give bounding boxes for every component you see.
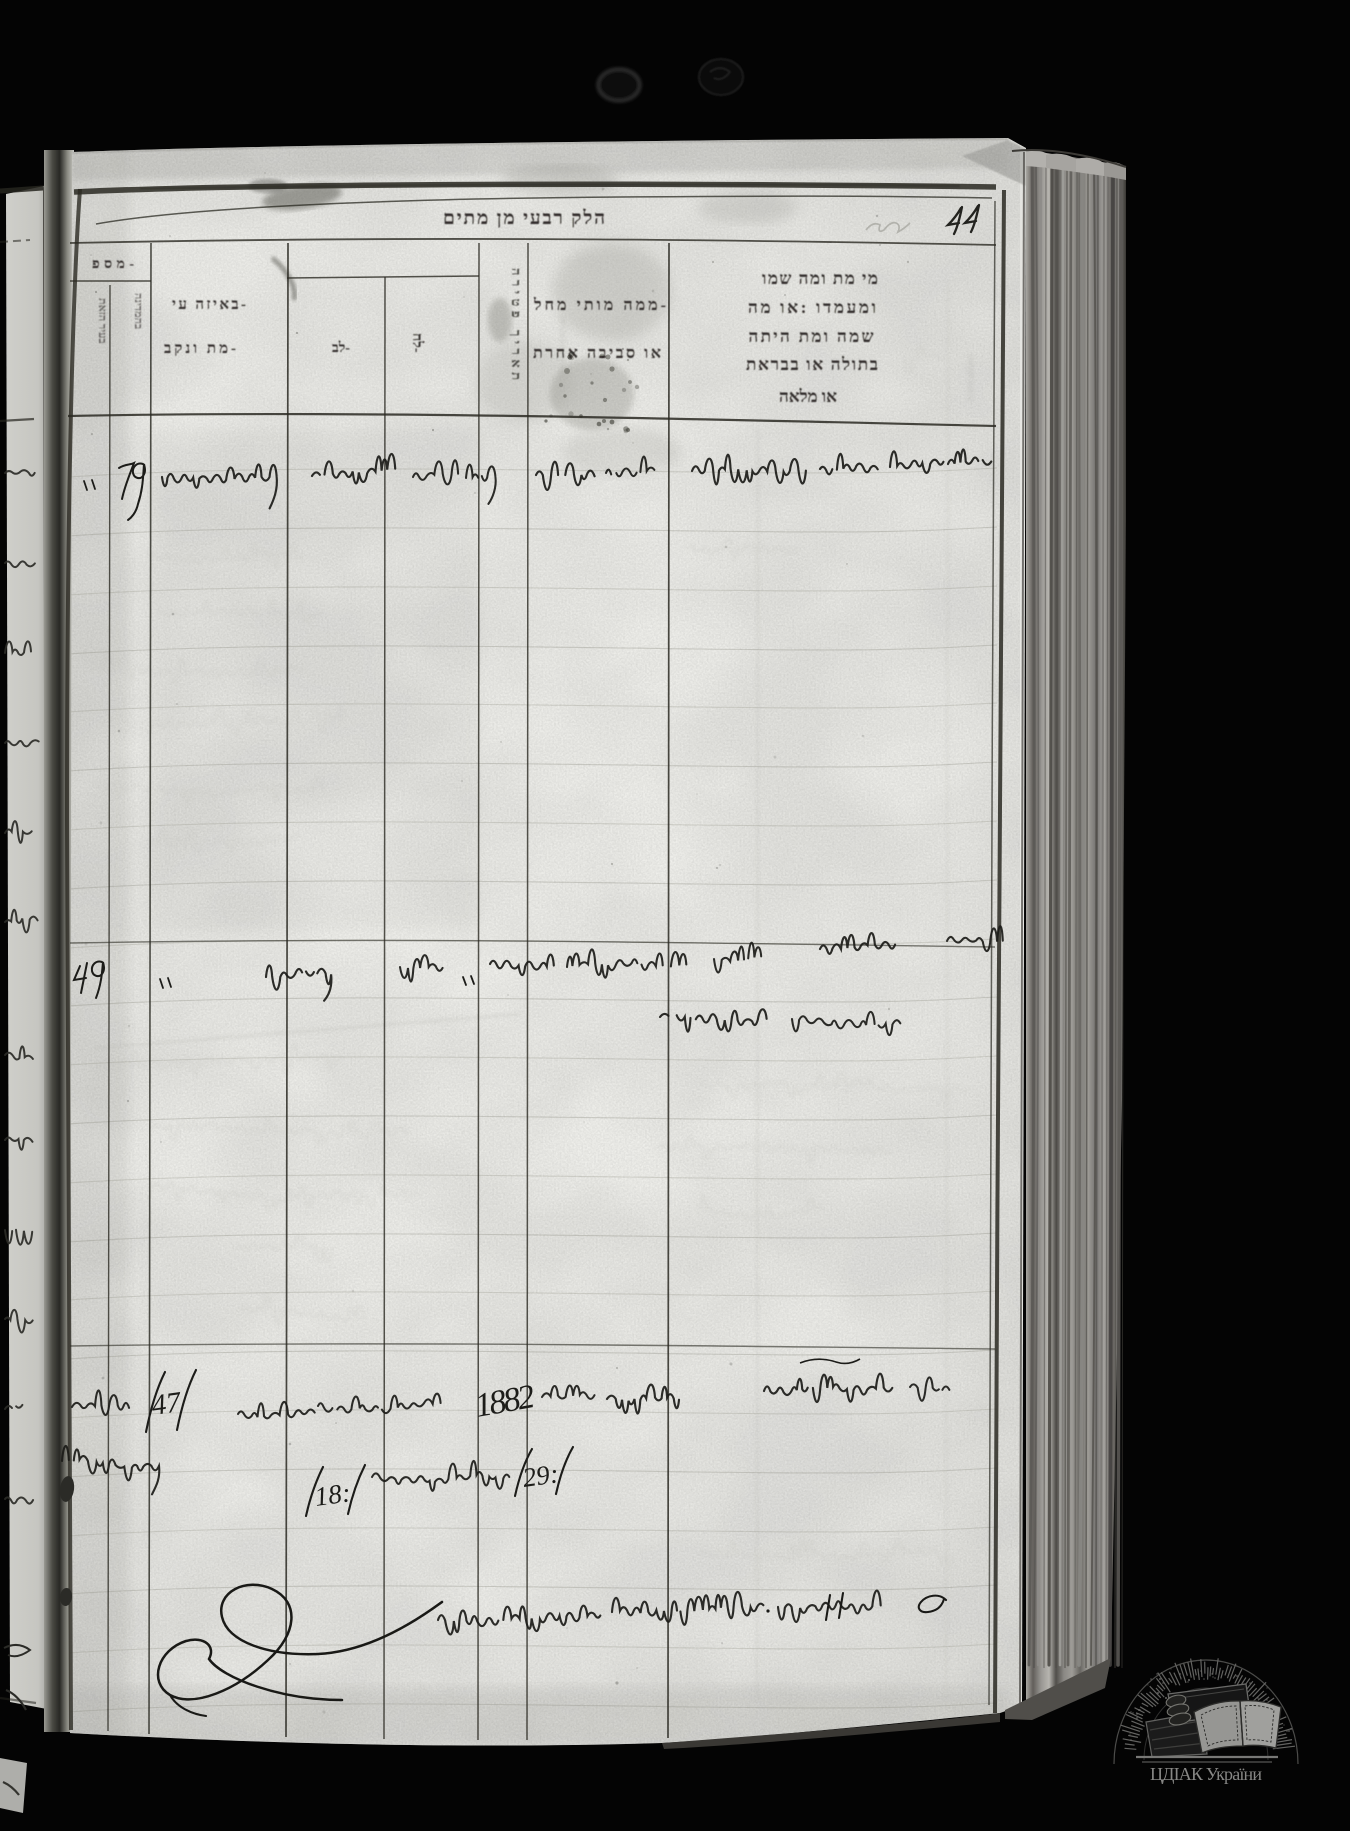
svg-text:לב-: לב- (332, 340, 350, 356)
svg-text:או מלאה: או מלאה (779, 387, 837, 406)
svg-text:בעיר הזאת: בעיר הזאת (96, 298, 108, 344)
svg-text:18:: 18: (313, 1477, 353, 1512)
svg-text:בהמדינה: בהמדינה (132, 293, 144, 329)
svg-text:באיזה עי-: באיזה עי- (172, 297, 246, 313)
svg-text:הלק רבעי מן מתים: הלק רבעי מן מתים (443, 208, 605, 229)
svg-text:ЦДІАК України: ЦДІАК України (1150, 1764, 1262, 1784)
svg-text:29:: 29: (521, 1458, 561, 1493)
svg-text:מת ונקב-: מת ונקב- (164, 341, 236, 357)
svg-text:перепись: перепись (965, 355, 979, 402)
svg-text:בתולה או בבראת: בתולה או בבראת (746, 355, 878, 374)
svg-text:לח-: לח- (409, 333, 425, 353)
svg-text:תאריך פטירה: תאריך פטירה (509, 268, 524, 380)
svg-text:שמה ומת היתה: שמה ומת היתה (749, 327, 874, 346)
